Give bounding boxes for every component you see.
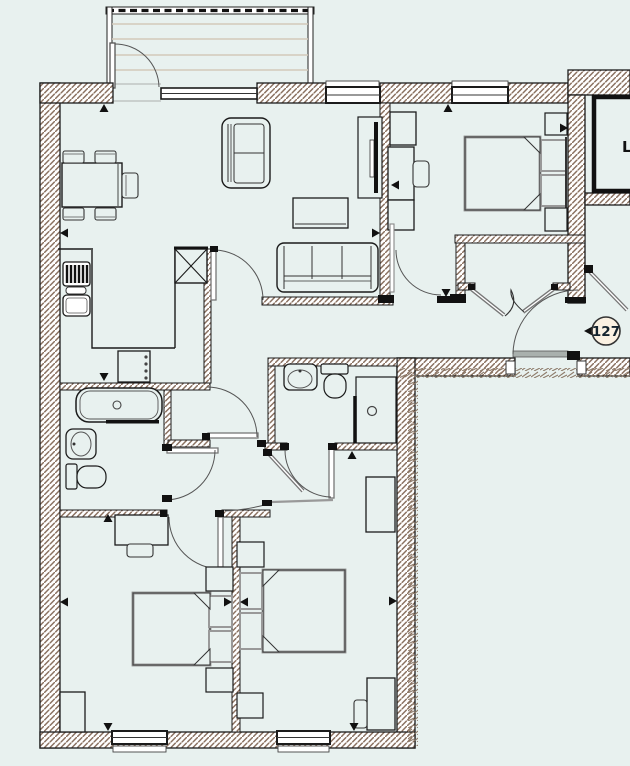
partition-walls-shape [456,243,465,302]
desk [115,515,168,545]
bed [465,137,540,210]
pillow [209,631,232,662]
balcony-shape [308,7,313,83]
marker-up [348,451,357,459]
partition-walls-shape [164,390,171,445]
chair [63,151,84,163]
outer-walls-shape [508,83,568,103]
door-leaf [208,433,258,438]
entry-shape [523,288,555,312]
bathroom-main-shape [207,387,257,437]
entry-shape [506,361,515,374]
tv [374,122,378,193]
outer-walls-shape [568,95,585,303]
outer-walls-shape [40,83,113,103]
wardrobe [366,477,395,532]
entry-shape [577,361,586,374]
door-hinges-shape [551,284,558,290]
nightstand [545,113,567,135]
door-hinges-shape [450,294,466,303]
toilet [321,364,348,374]
partition-walls-shape [268,358,275,450]
door-hinges-shape [257,440,266,447]
bed [263,570,345,652]
partition-walls-shape [168,440,210,447]
marker-left [60,229,68,238]
flat-number-badge: 127 [584,317,620,345]
door-hinges-shape [584,265,593,273]
door-hinges-shape [162,444,172,451]
hall-doors-shape [165,450,215,500]
entry-shape [590,272,627,310]
nightstand [545,208,567,231]
marker-down [104,723,113,731]
door-hinges-shape [565,297,586,303]
floor-plan-page: 127 L [0,0,630,766]
chair [95,208,116,220]
chair [63,208,84,220]
door-hinges-shape [160,510,167,517]
wardrobe [390,112,416,145]
marker-down [100,373,109,381]
pillow [541,140,566,171]
coffee-table [293,198,348,228]
nightstand [206,567,233,591]
cabinet [60,692,85,732]
neighbor-room-label: L [622,138,630,156]
living-dining [62,117,382,292]
marker-down [442,289,451,297]
door-leaf [329,448,334,498]
door-hinges-shape [210,246,218,252]
bathroom-main-shape [73,443,76,446]
door-leaf [218,517,223,567]
door-leaf [211,249,216,300]
outer-walls-shape [380,83,452,103]
entry-shape [470,288,504,315]
door-leaf [167,448,218,453]
nightstand [206,668,233,692]
chair [95,151,116,163]
door-hinges-shape [468,284,475,290]
marker-right [372,229,380,238]
dining-table [62,163,122,207]
desk [388,147,414,200]
entry-door-leaf [513,351,568,357]
outer-walls-shape [568,70,630,95]
bathroom-ensuite-shape [299,370,302,373]
outer-walls-shape [40,83,60,748]
nightstand [237,542,264,567]
kitchen-shape [92,250,175,348]
kitchen-shape [144,355,147,358]
balcony-shape [115,44,159,87]
partition-walls-shape [455,235,585,243]
outer-walls-shape [257,83,326,103]
door-hinges-shape [280,443,289,450]
door-hinges-shape [215,510,224,517]
chair [122,173,138,198]
door-hinges-shape [328,443,337,450]
partition-walls-shape [262,297,393,305]
toilet [66,464,77,489]
bedroom-3 [60,515,233,732]
marker-left [60,598,68,607]
outer-walls-shape [585,193,630,205]
desk [367,678,395,730]
door-hinges-shape [378,295,394,303]
bathroom-main-shape [106,420,159,424]
bedroom-1 [388,112,567,295]
marker-right [389,597,397,606]
door-hinges-shape [263,449,272,456]
partition-walls-shape [335,443,397,450]
windows-shape [278,746,329,752]
rough-wall-edge [400,368,630,746]
kitchen-shape [144,376,147,379]
pillow [541,175,566,206]
door-hinges-shape [437,296,451,303]
bed [133,593,210,665]
living-dining-shape [370,140,374,177]
door-hinges-shape [162,495,172,502]
door-hinges-shape [262,500,272,506]
pillow [240,613,262,649]
hall-doors-shape [272,500,333,502]
marker-up [444,104,453,112]
bathtub [76,388,162,422]
kitchen-shape [144,362,147,365]
sofa [277,243,378,292]
chair [127,544,153,557]
kitchen [58,248,263,382]
windows-shape [113,746,166,752]
door-hinges-shape [202,433,210,440]
rough-wall-edge-shape [408,368,418,746]
bathroom-main [66,387,258,489]
hall-doors-shape [169,517,221,569]
bathroom-main-shape [77,466,106,488]
bathroom-ensuite-shape [285,450,331,497]
balcony-door-leaf [110,43,115,88]
door-hinges-shape [567,351,580,360]
nightstand [237,693,263,718]
outer-walls-shape [40,732,415,748]
marker-up [100,104,109,112]
chair [413,161,429,187]
flat-number: 127 [592,324,620,340]
floor-plan: 127 L [0,0,630,766]
door-leaf [390,224,394,292]
kitchen-shape [144,369,147,372]
entry-shape [505,290,524,316]
bedroom-1-shape [396,250,441,295]
kitchen-shape [66,287,86,294]
kitchen-shape [216,250,263,300]
bathroom-ensuite-shape [324,374,346,398]
